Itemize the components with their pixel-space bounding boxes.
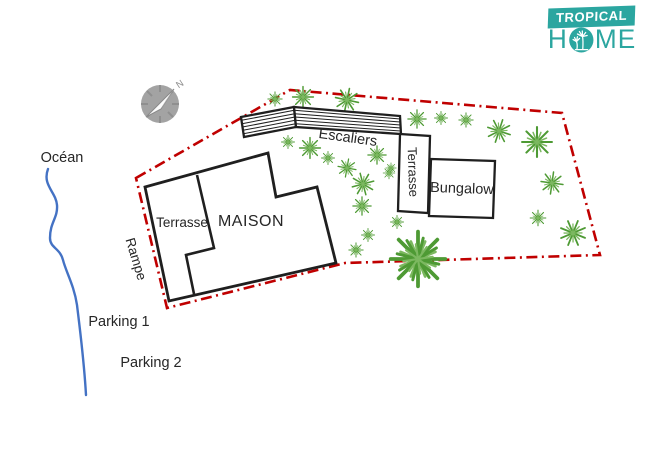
compass-icon: N [141, 78, 186, 123]
parking2-label: Parking 2 [120, 355, 181, 371]
plant-icon [435, 112, 448, 125]
plant-icon [353, 197, 371, 215]
plant-icon [556, 216, 590, 250]
plant-icon [522, 127, 552, 157]
plant-icon [268, 92, 282, 106]
ocean-shoreline [47, 169, 86, 395]
big-palm-icon [391, 232, 446, 287]
logo: TROPICAL H ME [544, 7, 640, 53]
site-plan-page: { "logo": { "line1": "TROPICAL", "line2"… [0, 0, 650, 450]
bungalow-label: Bungalow [430, 180, 495, 198]
logo-home-h: H [548, 26, 568, 53]
plant-icon [282, 136, 295, 149]
plant-icon [322, 152, 335, 165]
logo-home-text: H ME [545, 26, 638, 53]
terrace-house-label: Terrasse [156, 215, 208, 230]
rampe-label: Rampe [122, 236, 149, 282]
terrace-bungalow-label: Terrasse [405, 147, 422, 197]
plant-icon [349, 243, 363, 257]
plant-icon [530, 210, 546, 226]
plant-icon [336, 157, 357, 178]
plant-icon [540, 171, 565, 196]
plant-icon [293, 87, 314, 108]
north-label: N [174, 78, 186, 91]
maison-label: MAISON [218, 213, 284, 230]
plant-icon [408, 110, 426, 128]
ocean-label: Océan [41, 150, 84, 166]
logo-home-me: ME [595, 26, 636, 53]
parking1-label: Parking 1 [88, 314, 149, 330]
plant-icon [386, 163, 396, 173]
palm-circle-icon [569, 27, 594, 53]
plant-icon [391, 216, 404, 229]
plant-icon [348, 169, 378, 199]
plant-icon [459, 113, 473, 127]
plant-icon [362, 229, 375, 242]
plant-icon [484, 116, 513, 145]
site-plan-svg: N Océan MAISON Terrasse Escaliers Terras… [0, 0, 650, 450]
